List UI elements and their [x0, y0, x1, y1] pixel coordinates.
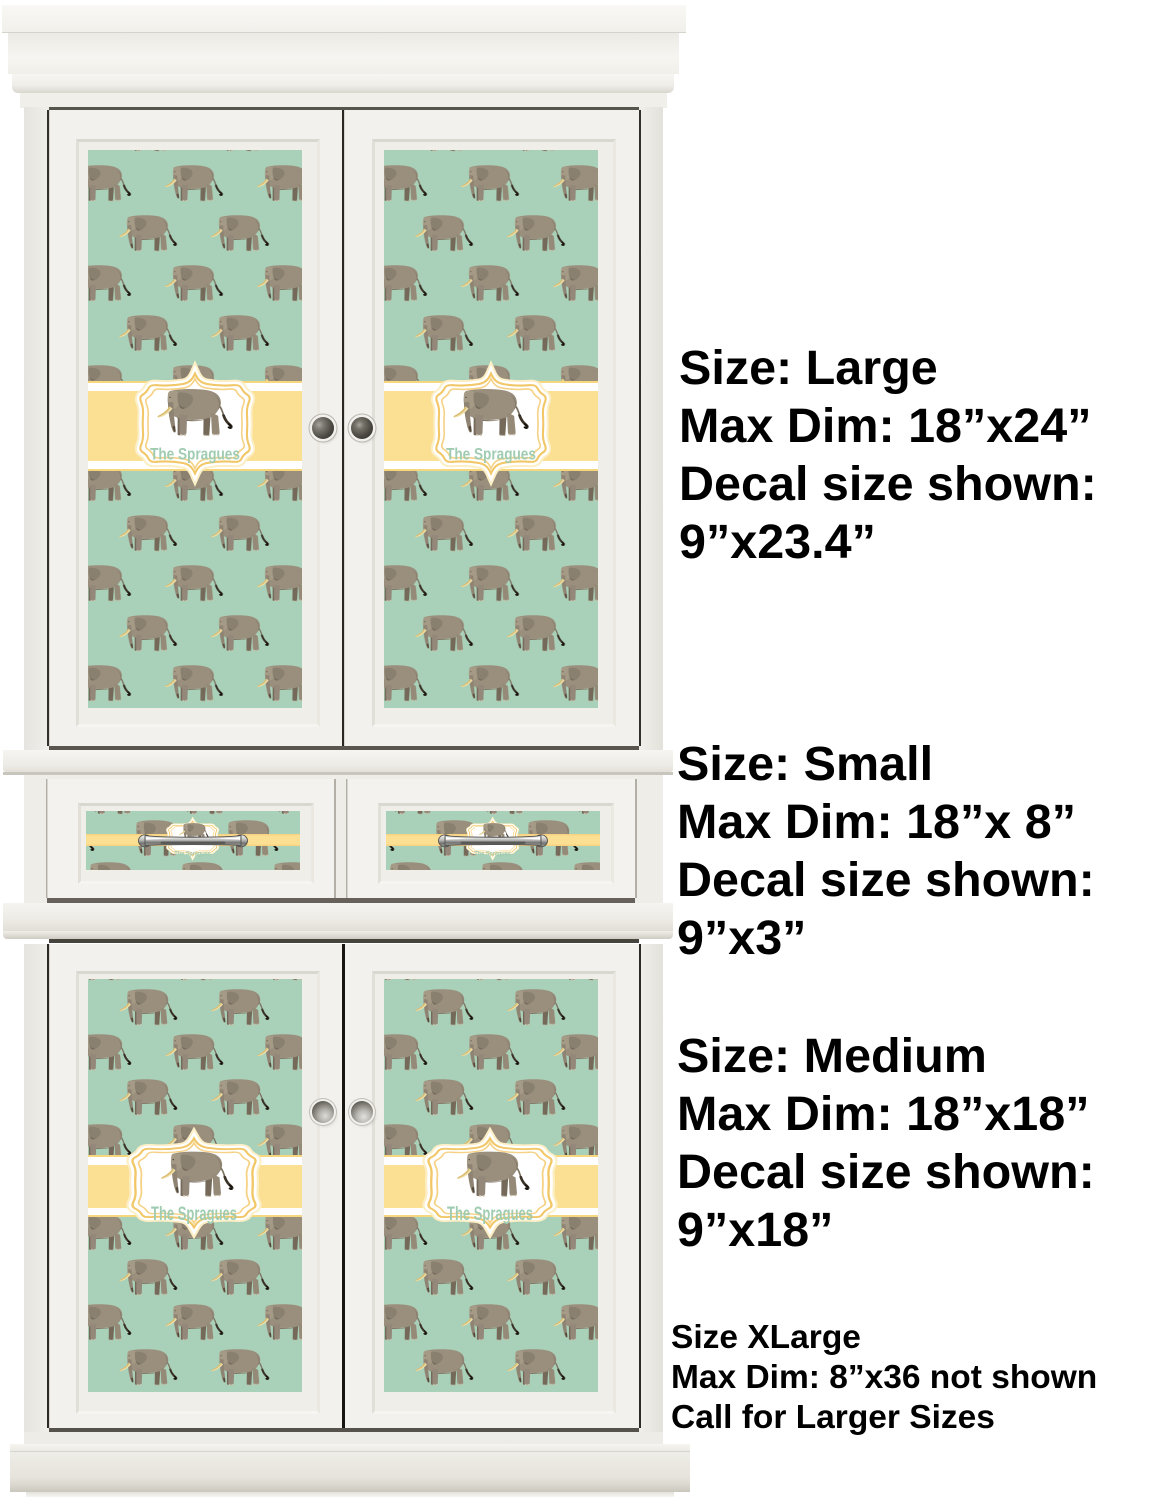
svg-text:The Spragues: The Spragues — [150, 445, 240, 464]
svg-text:The Spragues: The Spragues — [151, 1202, 237, 1224]
svg-text:The Spragues: The Spragues — [447, 1202, 533, 1224]
svg-text:The Spragues: The Spragues — [446, 445, 536, 464]
